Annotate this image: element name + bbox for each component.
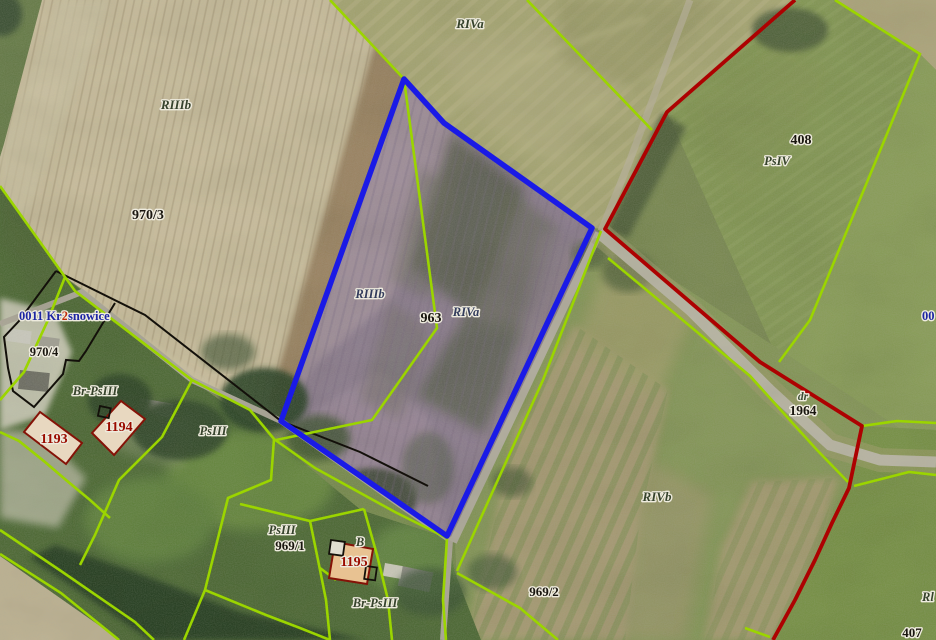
svg-text:1193: 1193 [40, 432, 67, 447]
svg-text:Rl: Rl [921, 590, 934, 604]
svg-text:RIIIb: RIIIb [354, 287, 384, 301]
svg-text:00: 00 [922, 309, 935, 323]
svg-text:408: 408 [791, 133, 812, 148]
svg-text:RIVa: RIVa [452, 305, 479, 319]
svg-text:969/2: 969/2 [529, 584, 559, 599]
svg-text:1964: 1964 [790, 403, 817, 418]
svg-text:RIVa: RIVa [455, 16, 484, 31]
svg-text:1194: 1194 [105, 420, 132, 435]
svg-text:963: 963 [421, 311, 442, 326]
svg-text:dr: dr [798, 391, 809, 403]
svg-text:970/3: 970/3 [132, 208, 164, 223]
svg-text:RIIIb: RIIIb [160, 97, 192, 112]
svg-text:PsIV: PsIV [764, 154, 791, 168]
svg-text:B: B [355, 535, 364, 549]
svg-text:0011 Kr2snowice: 0011 Kr2snowice [19, 309, 110, 323]
svg-text:RIVb: RIVb [642, 489, 672, 504]
svg-text:Br-PsIII: Br-PsIII [72, 384, 119, 398]
svg-text:407: 407 [902, 625, 922, 640]
svg-text:PsIII: PsIII [268, 523, 296, 537]
svg-text:Br-PsIII: Br-PsIII [352, 596, 399, 610]
svg-text:1195: 1195 [340, 555, 367, 570]
svg-text:969/1: 969/1 [275, 538, 305, 553]
svg-text:PsIII: PsIII [199, 424, 227, 438]
svg-text:970/4: 970/4 [30, 345, 59, 359]
